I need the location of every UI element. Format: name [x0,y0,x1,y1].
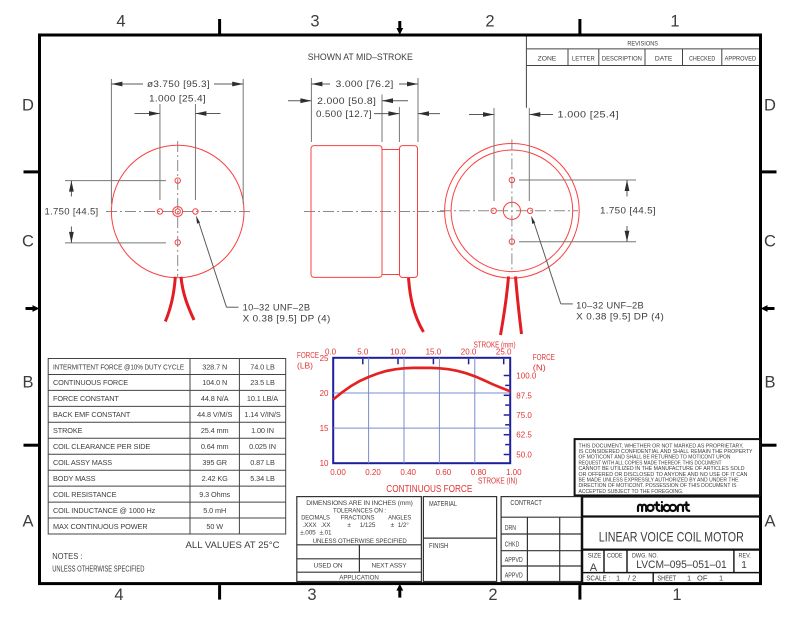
svg-text:100.0: 100.0 [516,372,537,381]
svg-text:1.14 V/IN/S: 1.14 V/IN/S [244,410,280,419]
svg-text:2: 2 [485,13,494,31]
svg-text:REV.: REV. [739,552,751,559]
svg-text:25: 25 [320,354,329,363]
svg-text:10.0: 10.0 [390,348,406,357]
svg-text:50 W: 50 W [206,522,223,531]
svg-text:STROKE: STROKE [53,426,83,435]
svg-text:20: 20 [320,389,329,398]
svg-text:3: 3 [310,13,319,31]
svg-text:10–32 UNF–2B: 10–32 UNF–2B [243,302,311,312]
svg-text:±: ± [347,522,351,529]
svg-text:10.1 LB/A: 10.1 LB/A [247,394,278,403]
svg-text:1.00 IN: 1.00 IN [251,426,274,435]
svg-text:SHEET: SHEET [657,573,676,582]
svg-text:.XX: .XX [320,522,331,529]
svg-text:1.750 [44.5]: 1.750 [44.5] [45,206,99,216]
svg-text:25.0: 25.0 [496,348,512,357]
svg-text:DIMENSIONS ARE IN INCHES (mm): DIMENSIONS ARE IN INCHES (mm) [306,500,413,507]
svg-text:±: ± [391,522,395,529]
svg-text:(LB): (LB) [297,361,313,370]
svg-text:FORCE CONSTANT: FORCE CONSTANT [53,394,119,403]
svg-text:44.8 V/M/S: 44.8 V/M/S [197,410,232,419]
svg-text:FORCE: FORCE [297,351,319,360]
svg-text:CHKD: CHKD [505,541,520,548]
svg-text:75.0: 75.0 [516,411,532,420]
svg-text:0.00: 0.00 [330,468,346,477]
svg-text:0.025 IN: 0.025 IN [249,442,276,451]
svg-text:10–32 UNF–2B: 10–32 UNF–2B [576,301,644,311]
svg-text:BACK EMF CONSTANT: BACK EMF CONSTANT [53,410,131,419]
svg-text:87.5: 87.5 [516,391,532,400]
svg-text:1.750 [44.5]: 1.750 [44.5] [600,206,656,216]
svg-text:/ 2: / 2 [628,573,636,582]
svg-text:D: D [22,97,34,115]
svg-text:C: C [22,233,34,251]
svg-text:4: 4 [114,586,123,604]
svg-text:DECIMALS: DECIMALS [301,515,330,522]
svg-text:FRACTIONS: FRACTIONS [341,515,375,522]
svg-text:OF: OF [697,573,708,582]
svg-text:INTERMITTENT FORCE @10% DUTY C: INTERMITTENT FORCE @10% DUTY CYCLE [53,362,184,371]
svg-text:1.000 [25.4]: 1.000 [25.4] [558,110,620,120]
svg-text:1: 1 [687,573,691,582]
svg-text:A: A [764,513,775,531]
svg-text:C: C [764,233,776,251]
svg-text:5.0 mH: 5.0 mH [203,506,226,515]
svg-text:LETTER: LETTER [572,56,595,63]
svg-text:LVCM–095–051–01: LVCM–095–051–01 [636,559,727,571]
svg-text:25.4 mm: 25.4 mm [201,426,229,435]
svg-text:1/2°: 1/2° [398,521,410,529]
svg-text:APPVD: APPVD [505,573,523,580]
svg-text:1: 1 [741,560,747,571]
svg-text:1/125: 1/125 [360,522,376,529]
svg-text:.XXX: .XXX [302,522,317,529]
svg-text:COIL RESISTANCE: COIL RESISTANCE [53,490,117,499]
svg-text:±.005: ±.005 [300,530,316,537]
svg-text:ALL VALUES AT 25°C: ALL VALUES AT 25°C [186,540,280,551]
svg-text:USED ON: USED ON [314,563,343,570]
svg-text:10: 10 [320,459,329,468]
svg-text:15.0: 15.0 [426,348,442,357]
svg-text:X 0.38 [9.5] DP (4): X 0.38 [9.5] DP (4) [576,312,664,322]
svg-text:ZONE: ZONE [538,56,557,63]
svg-text:CONTRACT: CONTRACT [510,500,542,507]
svg-text:A: A [590,562,598,574]
svg-text:SIZE: SIZE [588,552,602,559]
svg-text:NEXT ASSY: NEXT ASSY [372,563,408,570]
svg-text:20.0: 20.0 [461,348,477,357]
svg-text:0.40: 0.40 [400,468,416,477]
svg-text:9.3 Ohms: 9.3 Ohms [199,490,230,499]
svg-text:FINISH: FINISH [429,543,448,550]
svg-text:±.01: ±.01 [320,530,333,537]
svg-text:NOTES :: NOTES : [52,552,82,561]
svg-text:LINEAR VOICE COIL MOTOR: LINEAR VOICE COIL MOTOR [599,528,744,544]
svg-text:104.0 N: 104.0 N [202,378,227,387]
svg-text:DESCRIPTION: DESCRIPTION [602,56,642,63]
svg-text:ACCEPTED SUBJECT TO THE FOREGO: ACCEPTED SUBJECT TO THE FOREGOING. [579,489,684,495]
svg-text:TOLERANCES ON :: TOLERANCES ON : [333,507,386,514]
svg-text:50.0: 50.0 [516,451,532,460]
svg-text:1: 1 [670,13,679,31]
svg-text:1: 1 [719,573,723,582]
svg-text:X 0.38 [9.5] DP (4): X 0.38 [9.5] DP (4) [243,313,331,323]
svg-text:CHECKED: CHECKED [689,56,715,63]
svg-text:BODY MASS: BODY MASS [53,474,96,483]
svg-text:15: 15 [320,424,329,433]
svg-text:1: 1 [616,573,620,582]
svg-text:5.34 LB: 5.34 LB [250,474,275,483]
svg-text:COIL ASSY MASS: COIL ASSY MASS [53,458,112,467]
svg-text:FORCE: FORCE [533,353,555,362]
svg-text:COIL CLEARANCE PER SIDE: COIL CLEARANCE PER SIDE [53,442,150,451]
svg-text:APPVD: APPVD [505,557,523,564]
svg-text:ANGLES: ANGLES [388,515,411,522]
svg-text:5.0: 5.0 [357,348,369,357]
svg-text:23.5 LB: 23.5 LB [250,378,275,387]
svg-text:B: B [764,374,775,392]
svg-text:1: 1 [672,586,681,604]
svg-text:CONTINUOUS FORCE: CONTINUOUS FORCE [53,378,128,387]
svg-text:APPROVED: APPROVED [725,56,757,63]
svg-text:CONTINUOUS FORCE: CONTINUOUS FORCE [386,483,472,495]
svg-text:COIL INDUCTANCE @ 1000 Hz: COIL INDUCTANCE @ 1000 Hz [53,506,156,515]
svg-text:3: 3 [307,586,316,604]
svg-text:DRN: DRN [505,525,516,532]
svg-text:ø3.750 [95.3]: ø3.750 [95.3] [147,79,210,89]
svg-text:SHOWN AT MID–STROKE: SHOWN AT MID–STROKE [308,52,413,63]
svg-text:0.87 LB: 0.87 LB [250,458,275,467]
svg-text:DATE: DATE [655,56,673,63]
svg-text:395 GR: 395 GR [202,458,227,467]
svg-text:SCALE :: SCALE : [586,573,610,582]
svg-text:MATERIAL: MATERIAL [429,501,457,508]
svg-text:0.64 mm: 0.64 mm [201,442,229,451]
svg-text:4: 4 [116,13,125,31]
svg-text:CODE: CODE [607,552,623,559]
svg-text:62.5: 62.5 [516,431,532,440]
svg-text:1.000 [25.4]: 1.000 [25.4] [149,94,206,104]
svg-text:APPLICATION: APPLICATION [339,575,379,582]
svg-text:A: A [22,513,33,531]
svg-text:328.7 N: 328.7 N [202,362,227,371]
svg-text:2: 2 [488,586,497,604]
svg-text:2.42 KG: 2.42 KG [202,474,228,483]
svg-text:UNLESS OTHERWISE SPECIFIED: UNLESS OTHERWISE SPECIFIED [313,538,407,545]
svg-text:3.000 [76.2]: 3.000 [76.2] [336,79,394,89]
svg-text:0.60: 0.60 [436,468,452,477]
svg-text:2.000 [50.8]: 2.000 [50.8] [317,96,376,106]
svg-text:REVISIONS: REVISIONS [627,41,658,48]
svg-text:B: B [22,374,33,392]
svg-text:UNLESS OTHERWISE SPECIFIED: UNLESS OTHERWISE SPECIFIED [52,565,144,574]
svg-text:D: D [764,97,776,115]
svg-text:MAX CONTINUOUS POWER: MAX CONTINUOUS POWER [53,522,147,531]
svg-text:44.8 N/A: 44.8 N/A [201,394,229,403]
svg-text:0.500 [12.7]: 0.500 [12.7] [316,109,372,119]
svg-text:0.20: 0.20 [365,468,381,477]
svg-text:74.0 LB: 74.0 LB [250,362,275,371]
svg-text:STROKE (IN): STROKE (IN) [478,476,518,485]
